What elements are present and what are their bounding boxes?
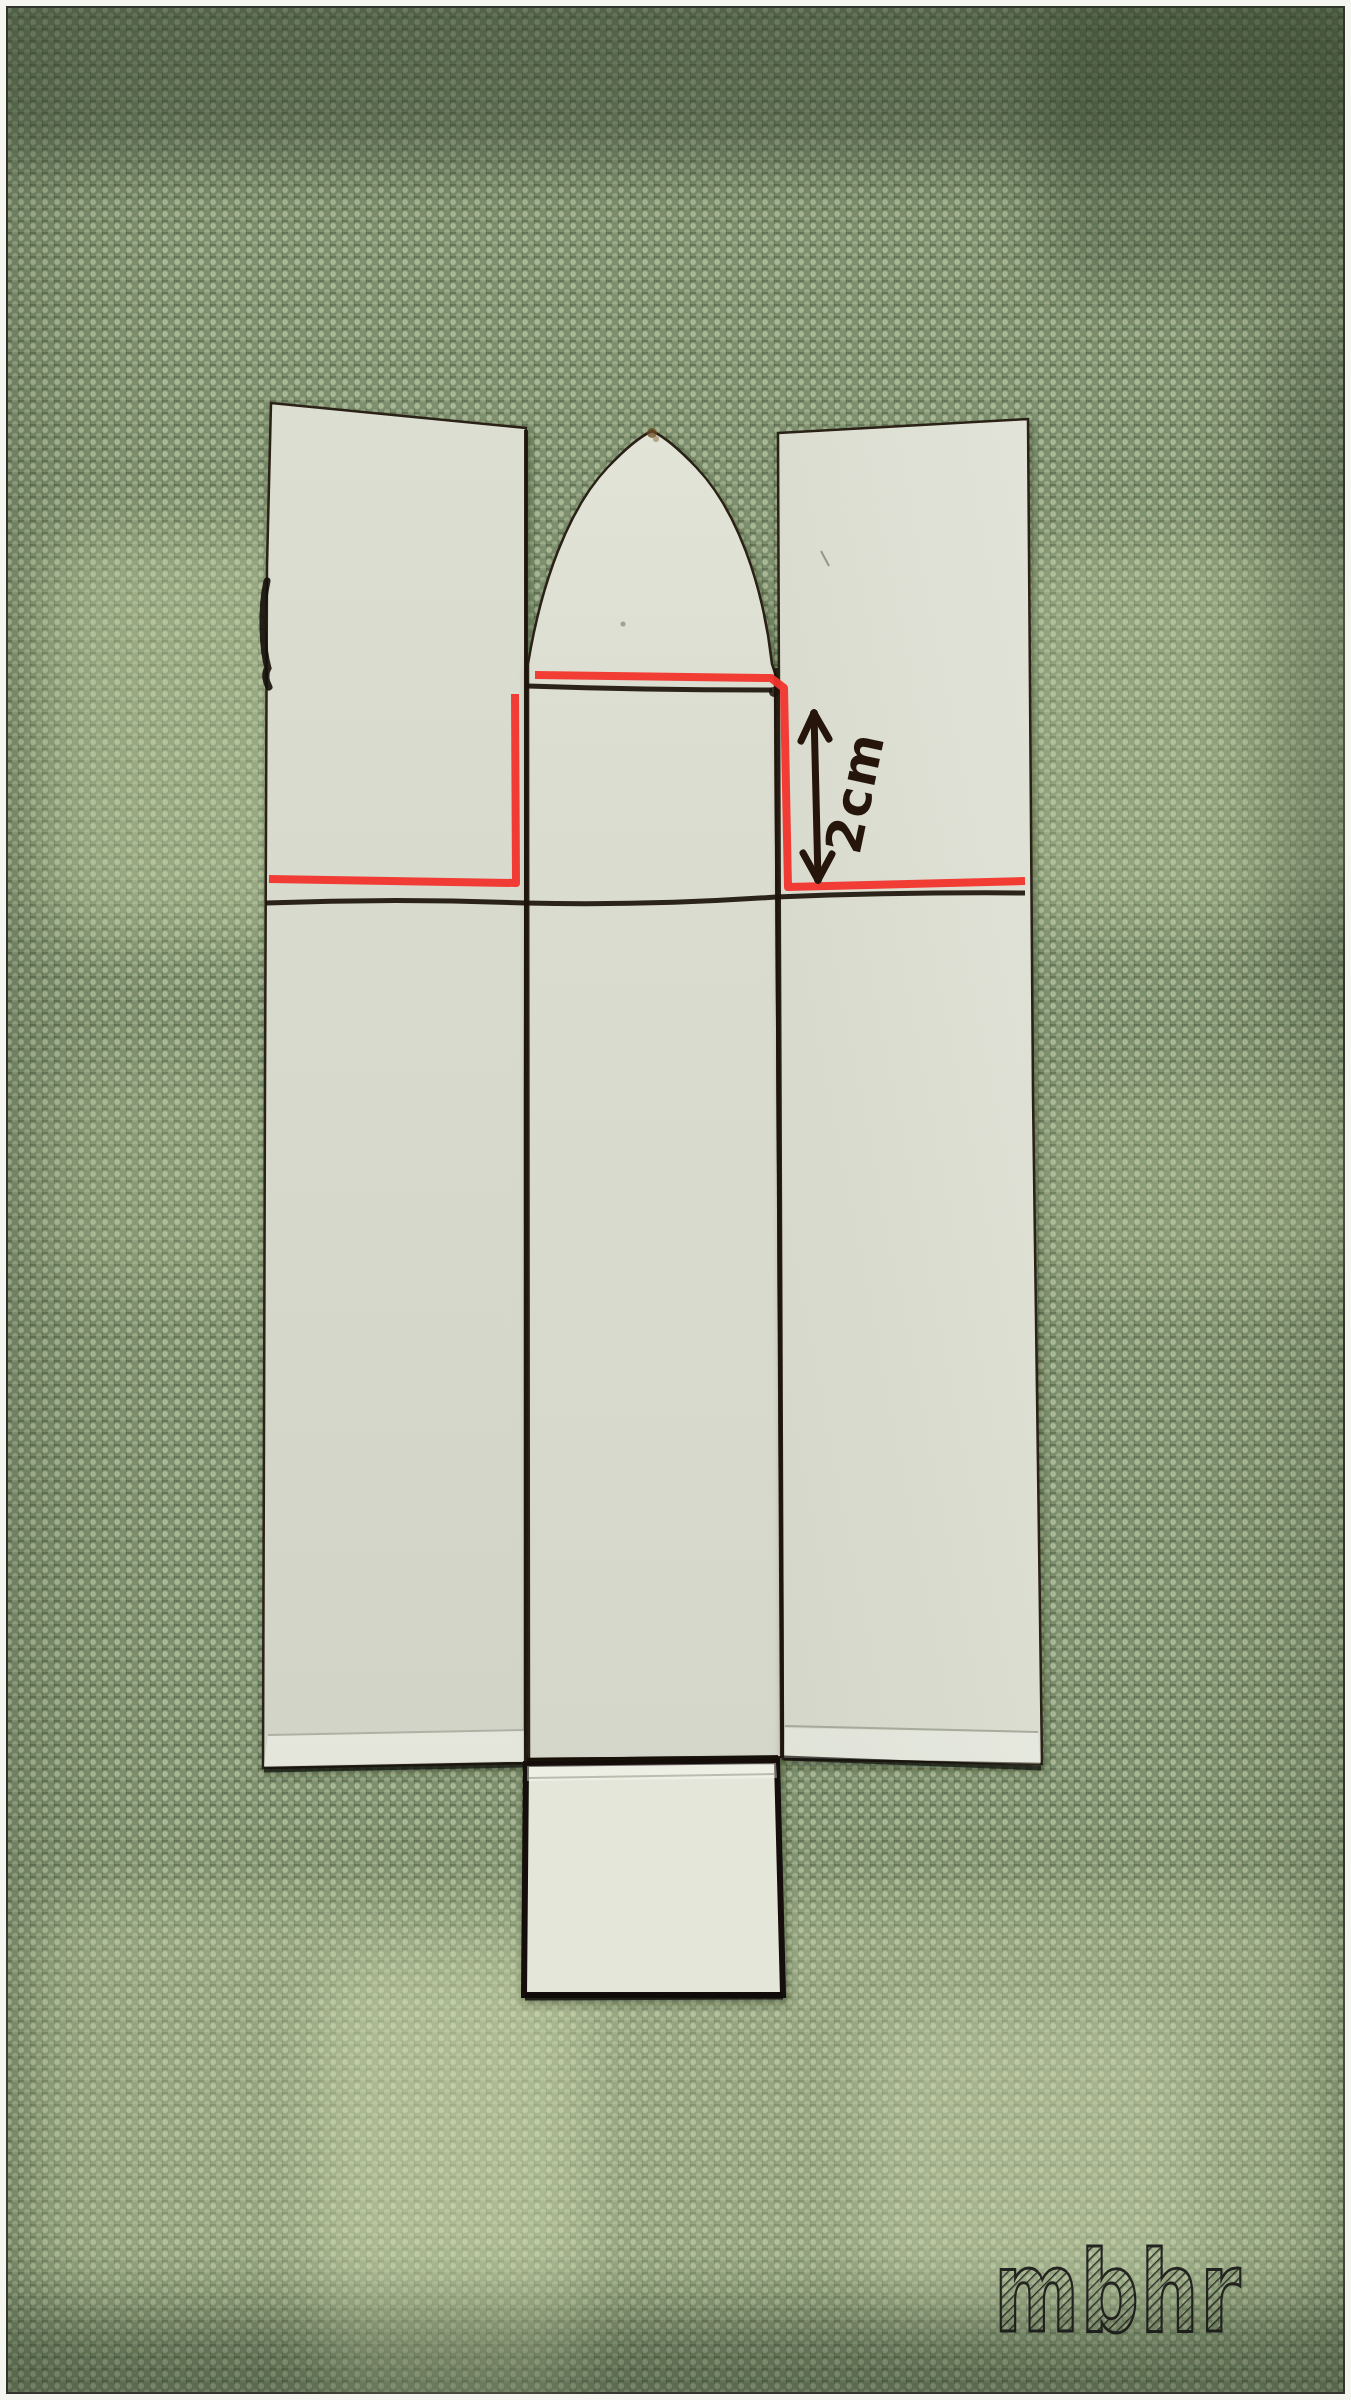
center-column-with-nose-cone: [528, 431, 782, 1759]
bottom-flap: [524, 1761, 783, 1995]
watermark: mbhr: [994, 2227, 1242, 2357]
flap-junction-line: [527, 1758, 778, 1761]
left-fold-boundary-line: [525, 430, 526, 1763]
flap-bottom-shadow: [525, 1996, 783, 1997]
left-panel: [263, 403, 526, 1768]
template-scene: 2cm mbhr: [6, 6, 1351, 2400]
nose-tip-smudge-2: [653, 436, 659, 442]
right-panel: [778, 419, 1042, 1764]
nose-base-ink-blob: [769, 687, 779, 697]
watermark-text: mbhr: [994, 2227, 1242, 2357]
nose-speck: [621, 622, 626, 627]
photo-frame: 2cm mbhr: [0, 0, 1351, 2400]
